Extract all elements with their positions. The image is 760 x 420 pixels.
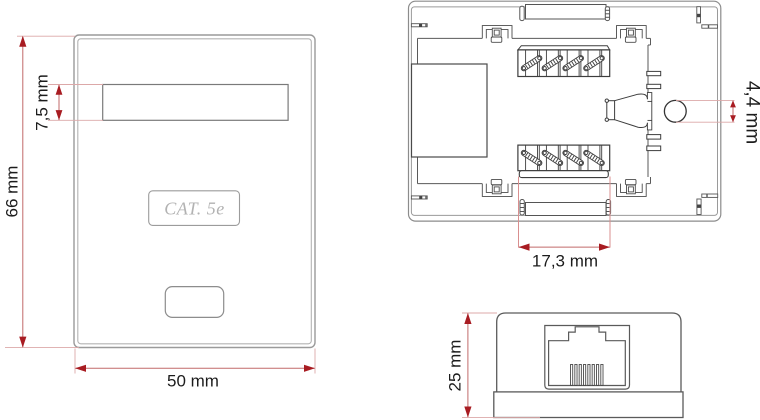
svg-text:66 mm: 66 mm xyxy=(3,166,22,218)
svg-text:CAT. 5e: CAT. 5e xyxy=(164,199,225,219)
svg-text:25 mm: 25 mm xyxy=(446,340,465,392)
svg-text:50 mm: 50 mm xyxy=(167,372,219,391)
svg-text:4,4 mm: 4,4 mm xyxy=(742,81,760,144)
svg-text:17,3 mm: 17,3 mm xyxy=(532,252,598,271)
svg-text:7,5 mm: 7,5 mm xyxy=(33,74,52,131)
